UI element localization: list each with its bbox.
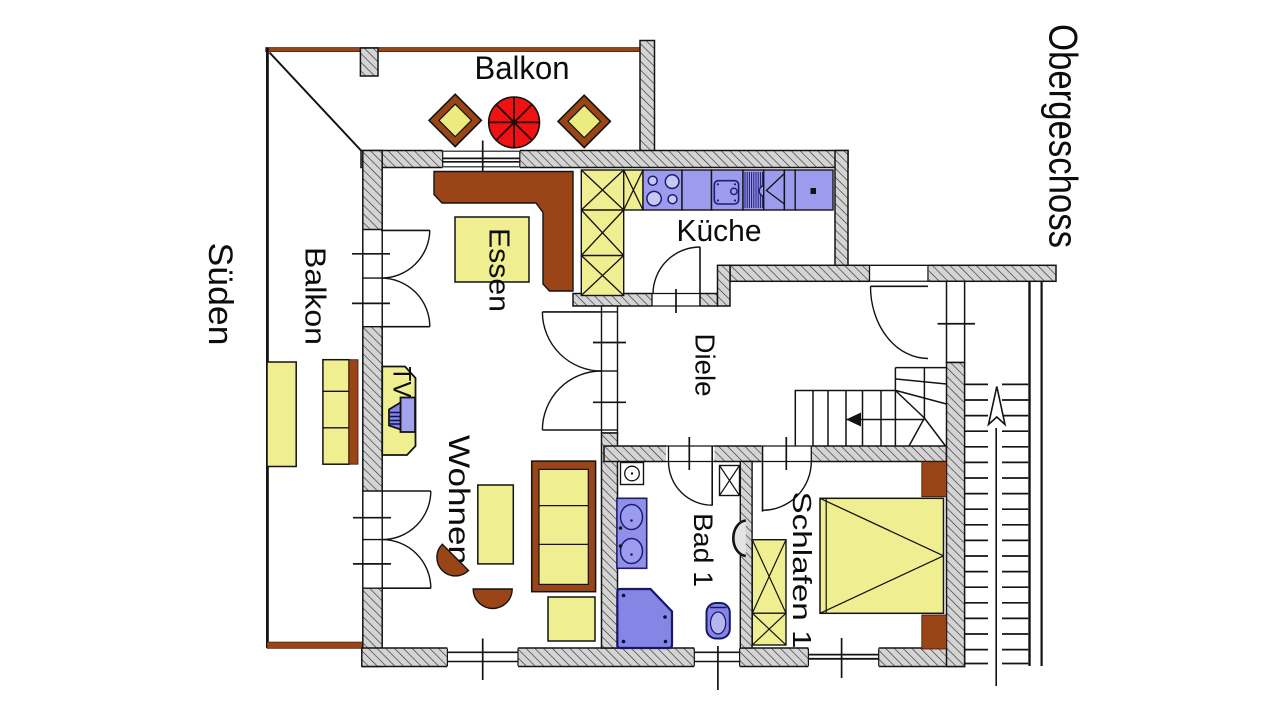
svg-text:Essen: Essen — [482, 228, 514, 312]
svg-text:Diele: Diele — [690, 334, 721, 397]
svg-text:Wohnen: Wohnen — [442, 435, 475, 565]
svg-text:Süden: Süden — [201, 243, 239, 346]
svg-text:Balkon: Balkon — [298, 247, 330, 345]
svg-text:Obergeschoss: Obergeschoss — [1040, 24, 1084, 248]
svg-text:TV: TV — [387, 367, 415, 398]
svg-text:Bad 1: Bad 1 — [688, 513, 718, 587]
svg-text:Küche: Küche — [677, 213, 762, 248]
svg-text:Schlafen 1: Schlafen 1 — [787, 492, 817, 649]
svg-text:Balkon: Balkon — [475, 50, 570, 86]
